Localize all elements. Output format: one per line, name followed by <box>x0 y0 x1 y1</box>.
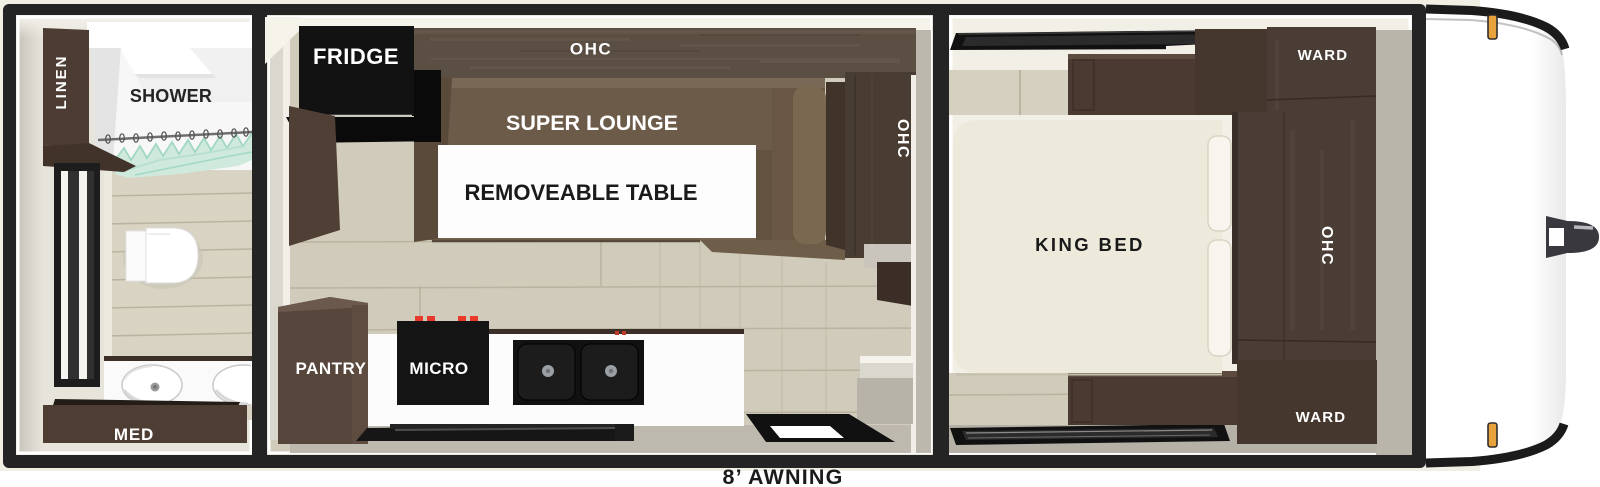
svg-text:MICRO: MICRO <box>409 359 468 378</box>
svg-text:OHC: OHC <box>570 40 612 59</box>
svg-text:WARD: WARD <box>1296 409 1347 426</box>
svg-text:OHC: OHC <box>1318 226 1335 266</box>
svg-text:SHOWER: SHOWER <box>130 86 212 106</box>
svg-text:OHC: OHC <box>894 119 911 159</box>
svg-text:MED: MED <box>114 425 154 444</box>
svg-text:PANTRY: PANTRY <box>296 359 367 378</box>
svg-text:KING BED: KING BED <box>1035 234 1145 255</box>
svg-text:8’ AWNING: 8’ AWNING <box>722 465 843 487</box>
svg-text:SUPER LOUNGE: SUPER LOUNGE <box>506 111 678 135</box>
svg-text:LINEN: LINEN <box>53 55 70 110</box>
svg-text:REMOVEABLE TABLE: REMOVEABLE TABLE <box>464 180 697 205</box>
svg-text:FRIDGE: FRIDGE <box>313 44 399 69</box>
svg-text:WARD: WARD <box>1298 47 1349 64</box>
